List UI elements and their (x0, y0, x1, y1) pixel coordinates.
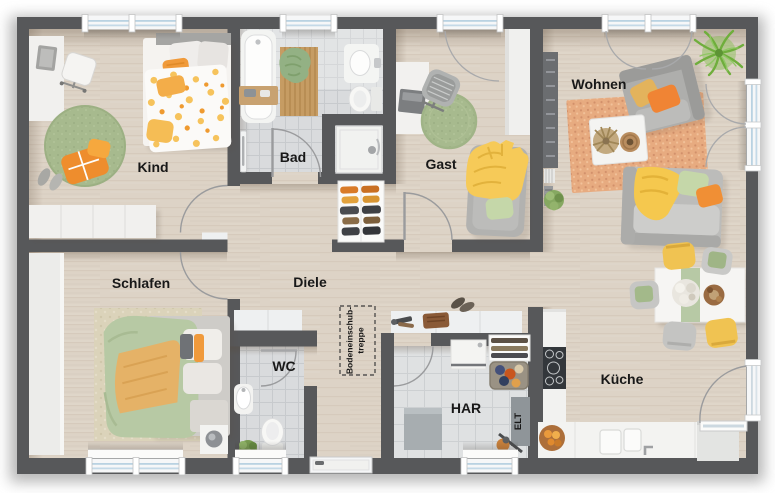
svg-text:Kind: Kind (137, 159, 168, 175)
svg-text:Wohnen: Wohnen (572, 76, 627, 92)
svg-text:Gast: Gast (425, 156, 456, 172)
svg-text:Schlafen: Schlafen (112, 275, 170, 291)
svg-text:Bodeneinschub-: Bodeneinschub- (345, 307, 355, 374)
svg-text:ELT: ELT (513, 413, 524, 430)
svg-text:HAR: HAR (451, 400, 481, 416)
svg-text:Diele: Diele (293, 274, 327, 290)
svg-text:treppe: treppe (356, 327, 366, 353)
svg-text:Bad: Bad (280, 149, 306, 165)
svg-text:Küche: Küche (601, 371, 644, 387)
svg-text:WC: WC (272, 358, 295, 374)
